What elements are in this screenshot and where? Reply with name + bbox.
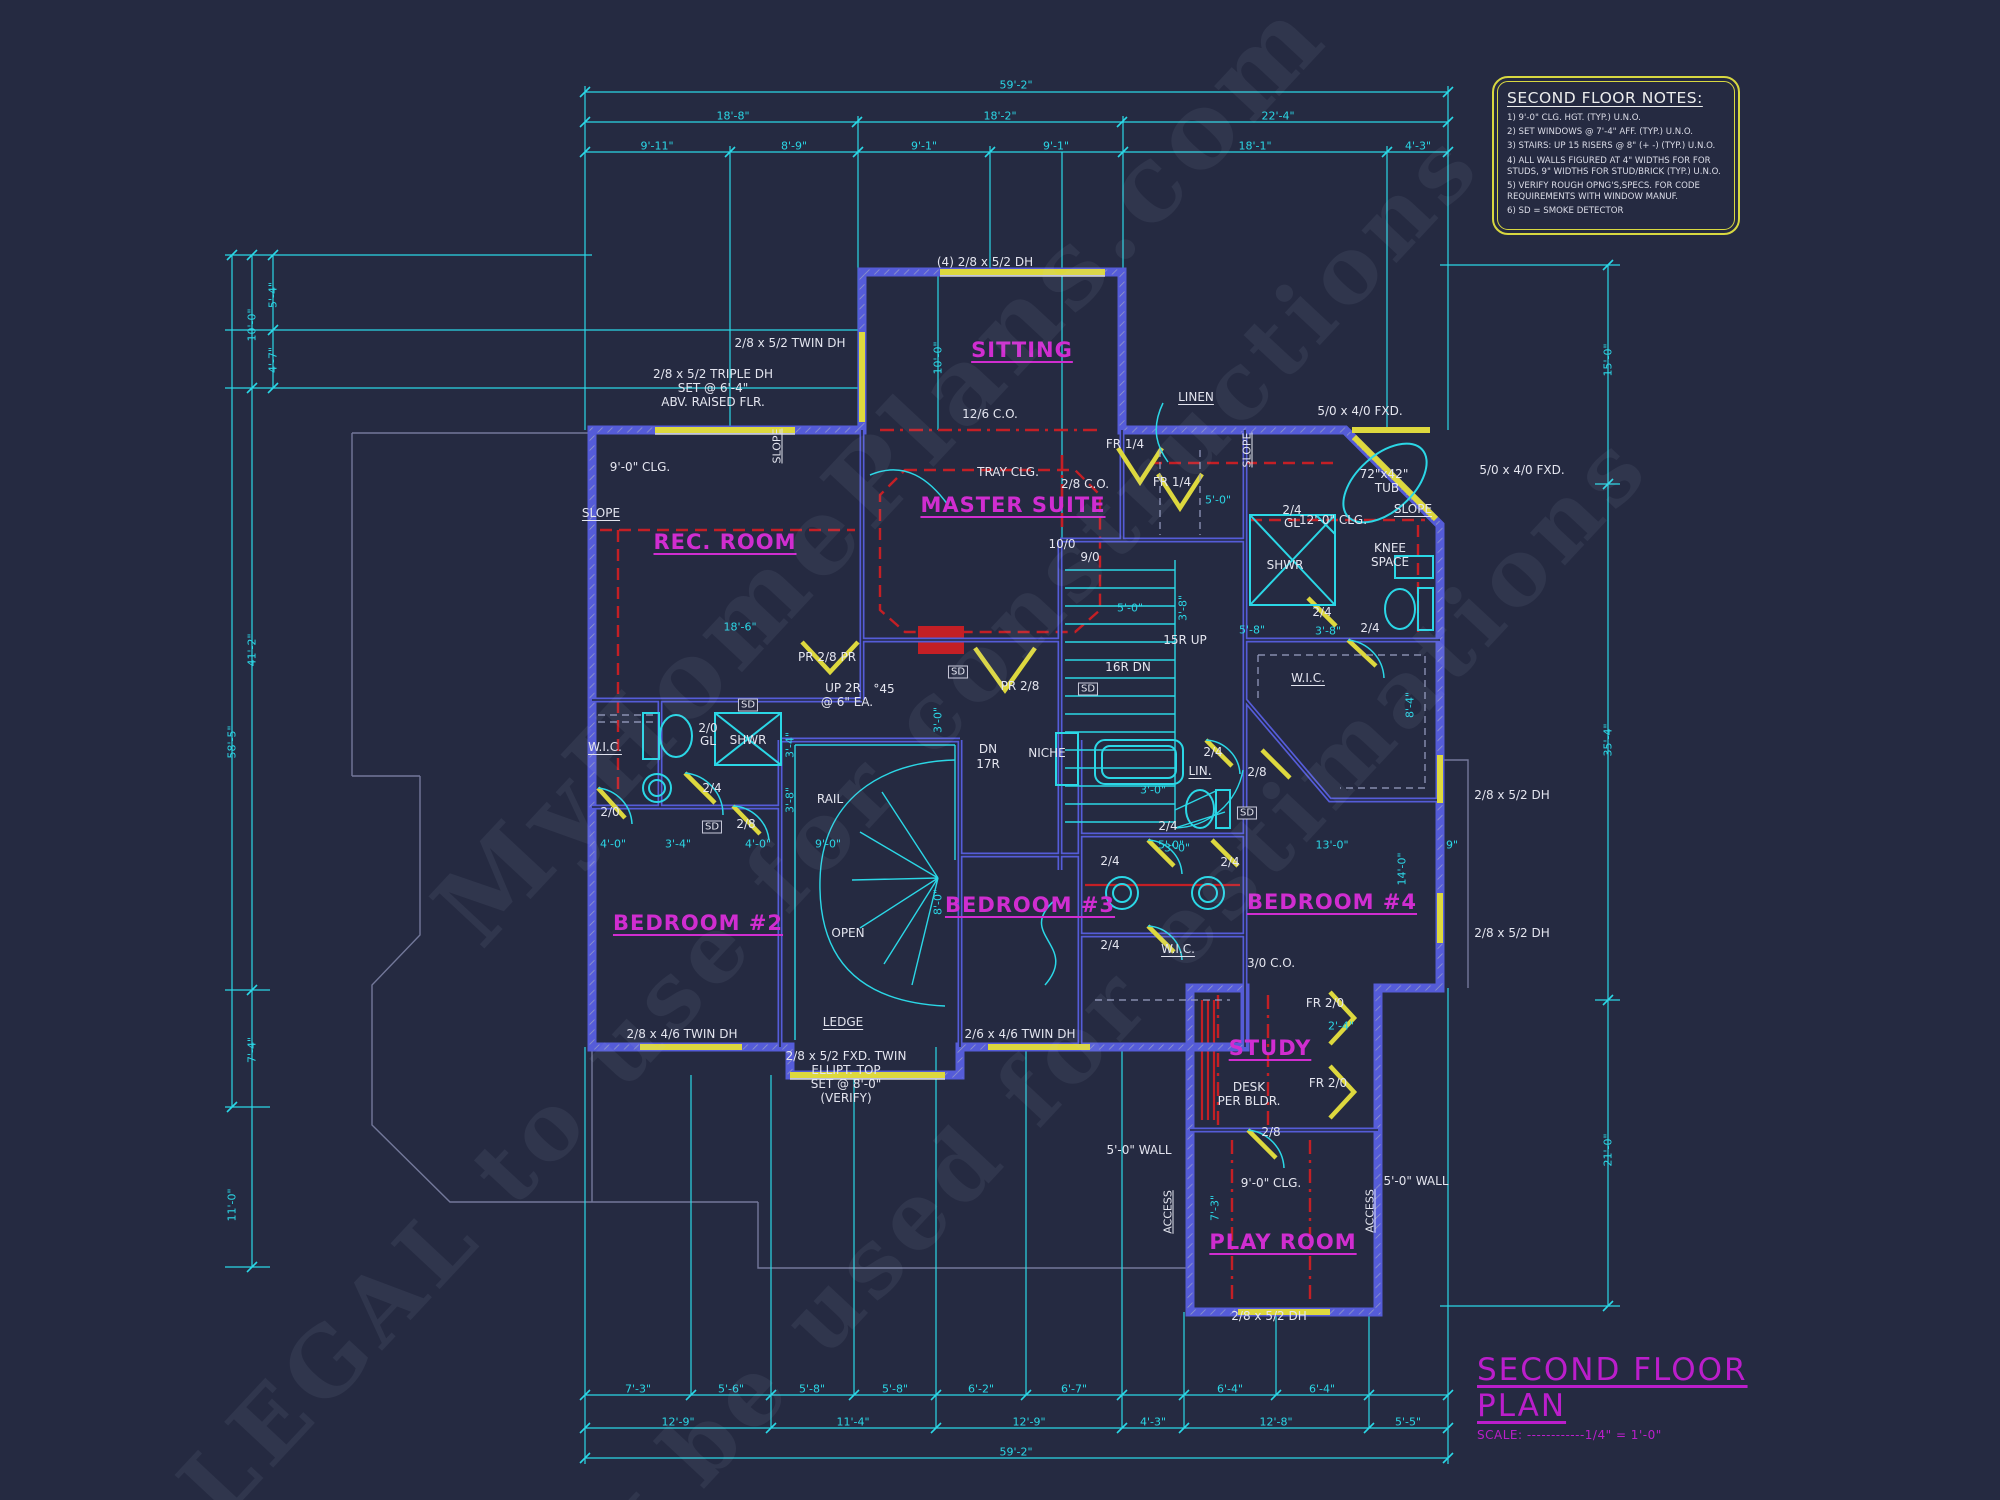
fixtures: [643, 429, 1441, 909]
notes-title: SECOND FLOOR NOTES:: [1507, 89, 1725, 107]
dimension-ticks: [227, 87, 1613, 1463]
note-item: 5) VERIFY ROUGH OPNG'S,SPECS. FOR CODE R…: [1507, 181, 1725, 203]
plan-scale: SCALE: ------------1/4" = 1'-0": [1477, 1428, 1807, 1442]
door-swings: [598, 403, 1384, 1168]
note-item: 1) 9'-0" CLG. HGT. (TYP.) U.N.O.: [1507, 113, 1725, 124]
plan-title: SECOND FLOOR PLAN: [1477, 1352, 1807, 1424]
sink: [1106, 877, 1138, 909]
ceiling-lines: [600, 430, 1425, 1300]
toilet-bowl: [1186, 790, 1214, 828]
floor-plan-canvas: SITTINGMASTER SUITEREC. ROOMBEDROOM #2BE…: [0, 0, 2000, 1500]
note-item: 4) ALL WALLS FIGURED AT 4" WIDTHS FOR FO…: [1507, 156, 1725, 178]
knee-space-counter: [1395, 556, 1433, 578]
note-item: 6) SD = SMOKE DETECTOR: [1507, 206, 1725, 217]
note-item: 2) SET WINDOWS @ 7'-4" AFF. (TYP.) U.N.O…: [1507, 127, 1725, 138]
title-block: SECOND FLOOR PLAN SCALE: ------------1/4…: [1477, 1352, 1807, 1442]
note-item: 3) STAIRS: UP 15 RISERS @ 8" (+ -) (TYP.…: [1507, 141, 1725, 152]
sink: [643, 774, 671, 802]
toilet-bowl: [660, 715, 692, 757]
closet-lines: [598, 450, 1425, 1000]
toilet-bowl: [1385, 589, 1415, 629]
second-floor-notes-box: SECOND FLOOR NOTES: 1) 9'-0" CLG. HGT. (…: [1492, 76, 1740, 235]
roof-outline: [352, 433, 1468, 1268]
toilet-tank: [643, 713, 659, 759]
toilet-tank: [1418, 588, 1433, 630]
sink: [1192, 877, 1224, 909]
dimension-lines: [225, 86, 1620, 1464]
